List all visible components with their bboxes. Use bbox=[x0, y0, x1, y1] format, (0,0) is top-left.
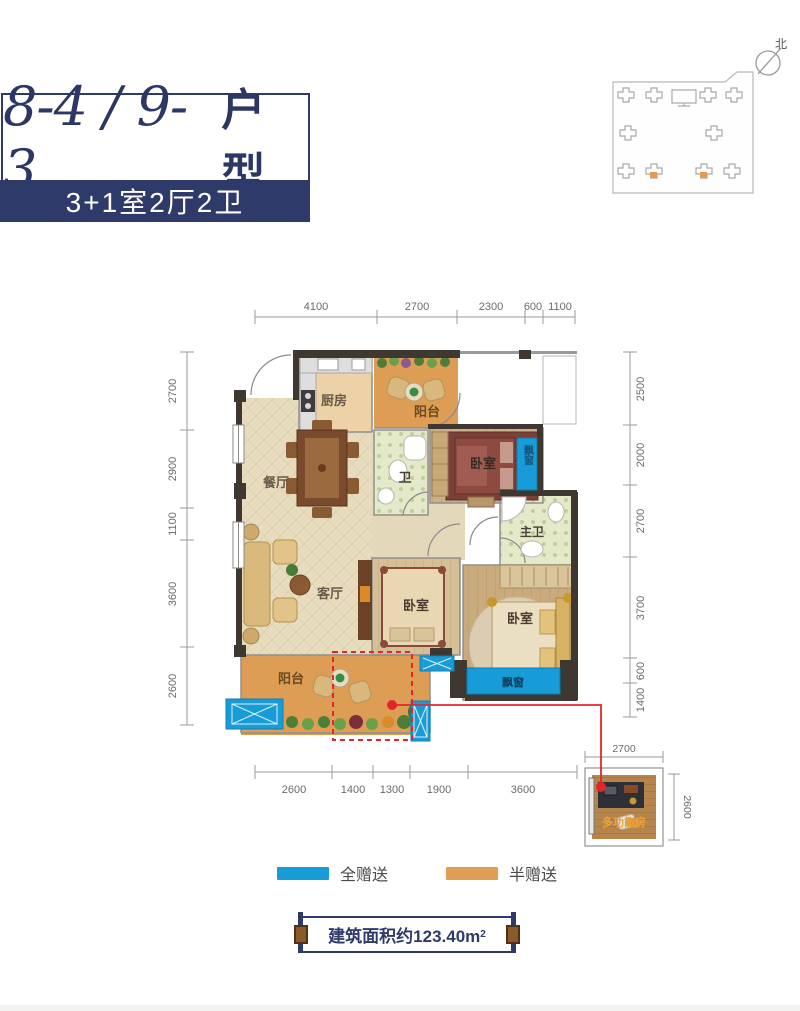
entry-door-arc bbox=[251, 355, 291, 395]
dim-bottom-3: 1900 bbox=[427, 784, 451, 796]
building-area-sup: 2 bbox=[480, 929, 486, 940]
bay-right-label: 飘窗 bbox=[522, 445, 534, 466]
bay-bottom-label: 飘窗 bbox=[502, 675, 524, 689]
half-gift-swatch bbox=[446, 867, 498, 880]
dim-right-3: 3700 bbox=[635, 596, 647, 620]
dim-left-4: 2600 bbox=[167, 674, 179, 698]
dim-right-4: 600 bbox=[635, 662, 647, 680]
multi-room-label: 多功能房 bbox=[602, 815, 646, 829]
dim-left-1: 2900 bbox=[167, 457, 179, 481]
area-box-knob-left bbox=[294, 925, 308, 944]
highlight-building-9 bbox=[700, 172, 707, 178]
bedroom-master-label: 卧室 bbox=[507, 611, 533, 626]
legend-item-half-gift: 半赠送 bbox=[446, 861, 557, 885]
dim-left-0: 2700 bbox=[167, 379, 179, 403]
full-gift-label: 全赠送 bbox=[340, 861, 388, 885]
callout-dot-annex bbox=[596, 782, 606, 792]
legend: 全赠送 半赠送 bbox=[277, 861, 557, 885]
north-label: 北 bbox=[775, 37, 787, 51]
dim-left-2: 1100 bbox=[167, 512, 179, 536]
dim-annex-right: 2600 bbox=[681, 795, 693, 819]
dim-top-4: 1100 bbox=[548, 301, 572, 313]
dim-left-3: 3600 bbox=[167, 582, 179, 606]
dim-annex-top: 2700 bbox=[612, 743, 636, 755]
dim-right-1: 2000 bbox=[635, 443, 647, 467]
floorplan-canvas: 北 4100 2700 2300 600 1100 2700 2900 1100 bbox=[0, 0, 800, 1011]
dim-top-1: 2700 bbox=[405, 301, 429, 313]
living-label: 客厅 bbox=[317, 586, 343, 601]
balcony-bottom-label: 阳台 bbox=[278, 671, 304, 686]
highlight-building-8 bbox=[650, 172, 657, 178]
full-gift-swatch bbox=[277, 867, 329, 880]
master-bath-label: 主卫 bbox=[520, 524, 544, 539]
gift-window-left bbox=[226, 699, 283, 729]
half-gift-label: 半赠送 bbox=[509, 861, 557, 885]
dim-bottom-1: 1400 bbox=[341, 784, 365, 796]
multi-room-door bbox=[589, 778, 594, 834]
callout-dot-balcony bbox=[387, 700, 397, 710]
area-box: 建筑面积约123.40m 2 bbox=[300, 916, 514, 953]
dim-top-2: 2300 bbox=[479, 301, 503, 313]
clubhouse-icon bbox=[672, 90, 696, 106]
dim-right-5: 1400 bbox=[635, 688, 647, 712]
dim-right-0: 2500 bbox=[635, 377, 647, 401]
north-arrow: 北 bbox=[756, 37, 787, 75]
bedroom-mid-label: 卧室 bbox=[403, 598, 429, 613]
ac-platform bbox=[543, 356, 576, 424]
kitchen-label: 厨房 bbox=[321, 393, 347, 408]
legend-item-full-gift: 全赠送 bbox=[277, 861, 388, 885]
dining-label: 餐厅 bbox=[262, 475, 289, 490]
gift-window-vertical bbox=[411, 701, 430, 741]
dim-bottom-4: 3600 bbox=[511, 784, 535, 796]
dim-top-3: 600 bbox=[524, 301, 542, 313]
dim-right-2: 2700 bbox=[635, 509, 647, 533]
bottom-decor-strip bbox=[0, 1005, 800, 1011]
bedroom-top-label: 卧室 bbox=[470, 456, 496, 471]
bedroom-master-door-arc bbox=[470, 517, 498, 545]
building-area-text: 建筑面积约123.40m bbox=[328, 922, 480, 947]
multi-room bbox=[585, 768, 663, 846]
balcony-top-label: 阳台 bbox=[414, 404, 440, 419]
gift-window-mid bbox=[420, 656, 454, 671]
area-box-knob-right bbox=[506, 925, 520, 944]
bath-label: 卫 bbox=[398, 470, 411, 485]
dim-bottom-2: 1300 bbox=[380, 784, 404, 796]
dim-bottom-0: 2600 bbox=[282, 784, 306, 796]
dim-top-0: 4100 bbox=[304, 301, 328, 313]
key-plan: 北 bbox=[613, 37, 787, 193]
